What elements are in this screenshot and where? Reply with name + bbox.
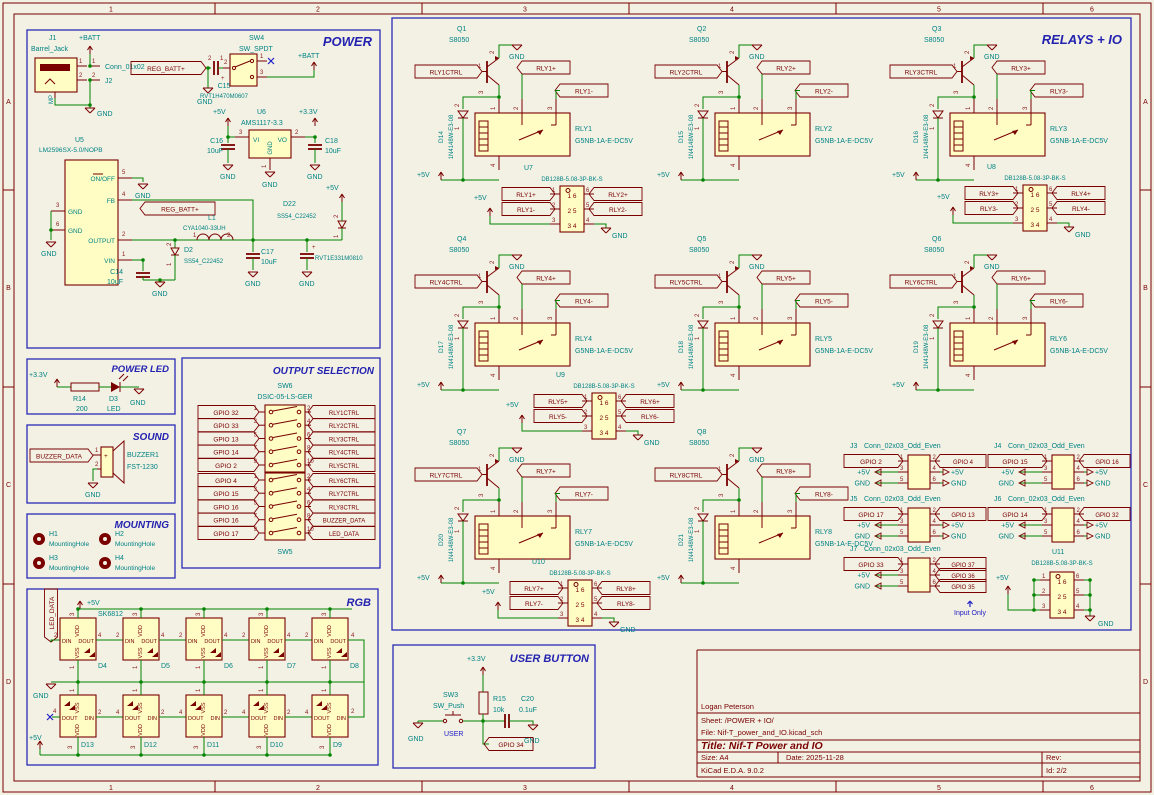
label: GND — [524, 738, 540, 745]
label: D14 — [438, 131, 445, 143]
gpio-label[interactable]: GPIO 33 — [198, 419, 259, 432]
net-label[interactable]: RLY2+ — [589, 188, 642, 201]
gnd-symbol — [302, 272, 312, 277]
label: GND — [197, 99, 213, 106]
ctrl-label[interactable]: RLY3CTRL — [308, 432, 375, 445]
label: GND — [998, 481, 1014, 488]
header-body[interactable] — [1052, 455, 1074, 489]
label: VSS — [264, 702, 270, 713]
label: 2 5 — [1057, 594, 1066, 601]
label: RLY8 — [815, 529, 832, 536]
label: 3 — [322, 612, 328, 616]
label: 1 — [262, 164, 268, 168]
label: 3 — [260, 70, 264, 76]
label: RLY2- — [815, 89, 833, 96]
label: GND — [220, 174, 236, 181]
power-arrow-icon — [481, 667, 486, 675]
junction — [1088, 578, 1092, 582]
label: 2 — [179, 633, 183, 639]
label: Q3 — [932, 26, 941, 33]
label: +5V — [417, 172, 430, 179]
label: RVT1E331M0810 — [315, 256, 363, 262]
gpio-label[interactable]: GPIO 14 — [198, 445, 259, 458]
label: VSS — [327, 702, 333, 713]
frame-row-label: A — [6, 99, 11, 106]
net-label[interactable]: RLY5- — [534, 410, 587, 423]
label: 4 — [224, 633, 228, 639]
relay-circuit-6[interactable]: Q6S8050RLY6CTRL1GND2321D191N4148W-E3-081… — [890, 236, 1108, 392]
label: 2 — [514, 106, 520, 110]
label: GND — [299, 281, 315, 288]
label: DB128B-5.08-3P-BK-S — [549, 571, 610, 577]
label: 2 — [224, 60, 228, 66]
net-label[interactable]: RLY3+ — [992, 61, 1045, 74]
label: 2 — [730, 453, 736, 457]
terminal-conn-U11[interactable]: U11DB128B-5.08-3P-BK-S1 62 53 4162534+5V… — [996, 549, 1114, 628]
gpio-label[interactable]: GPIO 16 — [1079, 455, 1130, 468]
label: VDD — [327, 625, 333, 637]
gpio-label[interactable]: GPIO 17 — [844, 508, 903, 521]
header-body[interactable] — [908, 558, 930, 592]
mounting-hole-icon[interactable] — [101, 559, 109, 567]
gpio-label[interactable]: GPIO 16 — [198, 513, 259, 526]
io-header-J6[interactable]: J6Conn_02x03_Odd_Even12GPIO 14GPIO 3234+… — [988, 496, 1130, 542]
ctrl-label[interactable]: RLY1CTRL — [308, 406, 375, 419]
flyback-diode — [458, 111, 468, 118]
flyback-diode — [698, 321, 708, 328]
relay-circuit-1[interactable]: Q1S8050RLY1CTRL1GND2321D141N4148W-E3-081… — [415, 26, 633, 182]
label: D16 — [913, 131, 920, 143]
gpio-label[interactable]: GPIO 32 — [198, 406, 259, 419]
transistor-emitter — [727, 58, 739, 67]
junction — [1032, 578, 1036, 582]
terminal-conn-U10[interactable]: U10DB128B-5.08-3P-BK-S1 62 53 4162534RLY… — [482, 559, 650, 634]
net-label-reg-batt[interactable]: REG_BATT+ — [140, 202, 215, 215]
ctrl-label[interactable]: RLY4CTRL — [308, 445, 375, 458]
power-arrow-icon — [55, 379, 60, 387]
power-arrow-icon — [488, 208, 493, 216]
ctrl-label[interactable]: RLY1CTRL — [415, 65, 482, 78]
label: GND — [620, 627, 636, 634]
label: +3.3V — [467, 656, 486, 663]
wire — [490, 216, 550, 224]
label: VDD — [201, 724, 207, 736]
wire — [953, 215, 1013, 223]
label: VSS — [138, 702, 144, 713]
label: GPIO 32 — [1095, 513, 1119, 519]
io-header-J4[interactable]: J4Conn_02x03_Odd_Even12GPIO 15GPIO 1634+… — [988, 443, 1130, 489]
ctrl-label[interactable]: RLY3CTRL — [890, 65, 957, 78]
label: G5NB-1A-E-DC5V — [575, 348, 633, 355]
ctrl-label[interactable]: RLY5CTRL — [308, 459, 375, 472]
label: H3 — [49, 555, 58, 562]
label: VDD — [264, 724, 270, 736]
gpio-label[interactable]: GPIO 4 — [198, 474, 259, 487]
label: 4 — [53, 709, 57, 715]
net-label[interactable]: RLY4- — [1052, 202, 1105, 215]
label: 1N4148W-E3-08 — [924, 114, 930, 159]
label: RLY7+ — [524, 586, 544, 593]
schematic-canvas[interactable]: 112233445566AABBCCDDLogan PetersonSheet:… — [0, 0, 1154, 795]
label: RLY5CTRL — [670, 280, 703, 287]
label: 3 — [900, 569, 904, 575]
label: C17 — [261, 249, 274, 256]
mounting-hole-icon[interactable] — [35, 535, 43, 543]
label: VIN — [104, 258, 115, 265]
label: 3 — [479, 493, 485, 497]
io-header-J5[interactable]: J5Conn_02x03_Odd_Even12GPIO 17GPIO 1334+… — [844, 496, 986, 542]
label: 1 — [259, 665, 265, 669]
ctrl-label[interactable]: BUZZER_DATA — [308, 513, 375, 526]
gpio-label[interactable]: GPIO 2 — [198, 459, 259, 472]
gpio-label[interactable]: GPIO 15 — [988, 455, 1047, 468]
ctrl-label[interactable]: RLY4CTRL — [415, 275, 482, 288]
relay-circuit-8[interactable]: Q8S8050RLY8CTRL1GND2321D211N4148W-E3-081… — [655, 429, 873, 585]
terminal-conn-U7[interactable]: U7DB128B-5.08-3P-BK-S1 62 53 4162534RLY1… — [474, 165, 642, 240]
line — [413, 723, 418, 728]
transistor-emitter — [962, 268, 974, 277]
label: RLY6CTRL — [905, 280, 938, 287]
net-label[interactable]: RLY7- — [510, 597, 563, 610]
label: DOUT — [267, 639, 283, 645]
net-label[interactable]: RLY4- — [555, 294, 608, 307]
label: 2 — [1042, 589, 1046, 595]
net-label[interactable]: RLY1+ — [517, 61, 570, 74]
net-label[interactable]: RLY5+ — [757, 271, 810, 284]
label: DSIC-05-LS-GER — [257, 394, 312, 401]
gpio-label[interactable]: GPIO 33 — [844, 558, 903, 571]
label: GND — [68, 228, 83, 235]
net-label[interactable]: RLY8+ — [757, 464, 810, 477]
label: DIN — [85, 716, 95, 722]
label: D10 — [270, 742, 283, 749]
wire — [626, 431, 638, 435]
label: 1 6 — [567, 193, 576, 200]
mounting-hole-icon[interactable] — [35, 559, 43, 567]
label: RLY3+ — [979, 191, 999, 198]
label: VSS — [75, 647, 81, 658]
label: 1N4148W-E3-08 — [924, 324, 930, 369]
net-label[interactable]: RLY3- — [1030, 84, 1083, 97]
label: +5V — [213, 109, 226, 116]
diode — [338, 221, 346, 228]
label: D22 — [283, 201, 296, 208]
transistor-collector — [962, 75, 974, 85]
label: 2 — [730, 260, 736, 264]
label: DIN — [125, 639, 135, 645]
label: GND — [130, 400, 146, 407]
line — [1069, 227, 1074, 232]
label: G5NB-1A-E-DC5V — [1050, 138, 1108, 145]
net-label-buzzer[interactable]: BUZZER_DATA — [30, 449, 93, 462]
label: L1 — [208, 215, 216, 222]
label: +3.3V — [29, 372, 48, 379]
power-arrow-icon — [520, 415, 525, 423]
net-label[interactable]: RLY1- — [502, 203, 555, 216]
wire — [228, 126, 235, 137]
spdt-switch[interactable] — [230, 54, 257, 86]
label: +5V — [857, 470, 870, 477]
label: 4 — [966, 163, 972, 167]
power-arrow-icon — [226, 118, 231, 126]
arrow-icon — [1087, 522, 1093, 528]
label: GND — [854, 584, 870, 591]
label: 1 — [478, 274, 482, 280]
line — [160, 282, 165, 287]
label: REG_BATT+ — [161, 207, 199, 214]
line — [265, 172, 270, 177]
net-label[interactable]: RLY8- — [597, 597, 650, 610]
label: 3 — [56, 203, 60, 209]
net-label[interactable]: RLY1- — [555, 84, 608, 97]
io-header-J7[interactable]: J7Conn_02x03_Odd_Even12GPIO 33GPIO 3734+… — [844, 546, 986, 593]
label: DB128B-5.08-3P-BK-S — [1031, 561, 1092, 567]
net-label[interactable]: RLY4+ — [517, 271, 570, 284]
line — [987, 45, 992, 50]
label: 2 — [989, 106, 995, 110]
net-label[interactable]: RLY5- — [795, 294, 848, 307]
sheet-id: Id: 2/2 — [1046, 766, 1067, 775]
label: RLY4CTRL — [329, 451, 360, 457]
frame-row-label: D — [6, 679, 11, 686]
barrel-jack[interactable] — [35, 58, 77, 92]
gpio-label[interactable]: GPIO 16 — [198, 500, 259, 513]
terminal-conn-U8[interactable]: U8DB128B-5.08-3P-BK-S1 62 53 4162534RLY3… — [937, 164, 1105, 239]
junction — [76, 753, 80, 757]
label: +5V — [482, 589, 495, 596]
ctrl-label[interactable]: LED_DATA — [308, 527, 375, 540]
ctrl-label[interactable]: RLY8CTRL — [655, 468, 722, 481]
label: RLY8+ — [616, 586, 636, 593]
gpio-label[interactable]: GPIO 2 — [844, 455, 903, 468]
gpio-label[interactable]: GPIO 17 — [198, 527, 259, 540]
relay-circuit-5[interactable]: Q5S8050RLY5CTRL1GND2321D181N4148W-E3-081… — [655, 236, 873, 392]
net-label[interactable]: RLY5+ — [534, 395, 587, 408]
label: RLY3- — [980, 206, 998, 213]
line — [93, 483, 98, 488]
label: +5V — [1095, 470, 1108, 477]
power-arrow-icon — [914, 382, 919, 390]
relay-circuit-7[interactable]: Q7S8050RLY7CTRL1GND2321D201N4148W-E3-081… — [415, 429, 633, 585]
label: J6 — [994, 496, 1002, 503]
section-power: POWERJ1+BATTBarrel_JackMP1122GNDConn_01x… — [27, 30, 380, 348]
label: GND — [854, 481, 870, 488]
label: 10uF — [325, 148, 341, 155]
junction — [328, 753, 332, 757]
frame-row-label: C — [6, 482, 11, 489]
net-label[interactable]: RLY2+ — [757, 61, 810, 74]
wire — [1057, 223, 1069, 227]
net-label[interactable]: RLY6- — [1030, 294, 1083, 307]
net-label[interactable]: RLY7+ — [517, 464, 570, 477]
net-label[interactable]: RLY6+ — [621, 395, 674, 408]
net-label[interactable]: RLY3+ — [965, 187, 1018, 200]
net-label[interactable]: RLY6- — [621, 410, 674, 423]
label: RLY1+ — [516, 192, 536, 199]
label: 4 — [179, 710, 183, 716]
gnd-symbol — [512, 448, 522, 453]
relay-circuit-4[interactable]: Q4S8050RLY4CTRL1GND2321D171N4148W-E3-081… — [415, 236, 633, 392]
gpio-label[interactable]: GPIO 4 — [935, 455, 986, 468]
power-arrow-icon — [439, 172, 444, 180]
net-label[interactable]: RLY2- — [589, 203, 642, 216]
io-header-J3[interactable]: J3Conn_02x03_Odd_Even12GPIO 2GPIO 434+5V… — [844, 443, 986, 489]
net-label[interactable]: RLY3- — [965, 202, 1018, 215]
terminal-conn-U9[interactable]: U9DB128B-5.08-3P-BK-S1 62 53 4162534RLY5… — [506, 372, 674, 447]
net-label[interactable]: RLY8- — [795, 487, 848, 500]
net-label[interactable]: RLY7- — [555, 487, 608, 500]
frame-column-label: 5 — [937, 7, 941, 14]
arrow-icon — [943, 469, 949, 475]
label: DIN — [314, 639, 324, 645]
flyback-diode — [933, 321, 943, 328]
label: S8050 — [449, 247, 469, 254]
label: 6 — [1077, 477, 1081, 483]
frame-column-label: 4 — [730, 785, 734, 792]
label: FST-1230 — [127, 464, 158, 471]
label: Q5 — [697, 236, 706, 243]
label: RLY4- — [575, 299, 593, 306]
label: 1 — [122, 252, 126, 258]
label: 3 — [196, 612, 202, 616]
label: Q7 — [457, 429, 466, 436]
label: 2 — [965, 260, 971, 264]
line — [517, 448, 522, 453]
label: RLY8CTRL — [670, 473, 703, 480]
relay-circuit-2[interactable]: Q2S8050RLY2CTRL1GND2321D151N4148W-E3-081… — [655, 26, 873, 182]
label: 1 — [196, 688, 202, 692]
line — [310, 165, 315, 170]
buzzer-body[interactable] — [101, 447, 113, 477]
label: H4 — [115, 555, 124, 562]
led-arrow — [123, 376, 128, 381]
label: J7 — [850, 546, 858, 553]
wire — [483, 721, 489, 744]
label: RLY6+ — [1011, 276, 1031, 283]
line — [757, 255, 762, 260]
label: RLY7- — [575, 492, 593, 499]
label: R15 — [493, 696, 506, 703]
relay-circuit-3[interactable]: Q3S8050RLY3CTRL1GND2321D161N4148W-E3-081… — [890, 26, 1108, 182]
label: D7 — [287, 663, 296, 670]
label: 1 — [322, 688, 328, 692]
section-user-button: USER BUTTON+3.3VR1510kSW3SW_PushGNDUSERG… — [393, 645, 595, 768]
resistor[interactable] — [479, 692, 488, 714]
label: Q8 — [697, 429, 706, 436]
label: 1 — [193, 233, 197, 239]
frame-column-label: 5 — [937, 785, 941, 792]
ctrl-label[interactable]: RLY8CTRL — [308, 500, 375, 513]
net-label[interactable]: RLY7+ — [510, 582, 563, 595]
label: RLY8CTRL — [329, 506, 360, 512]
label: GND — [644, 440, 660, 447]
header-body[interactable] — [908, 508, 930, 542]
label: 2 — [455, 103, 461, 107]
ctrl-label[interactable]: RLY2CTRL — [655, 65, 722, 78]
label: 2 — [930, 103, 936, 107]
label: 3 — [131, 745, 137, 749]
line — [1090, 616, 1095, 621]
net-label[interactable]: RLY8+ — [597, 582, 650, 595]
header-body[interactable] — [908, 455, 930, 489]
file-name: File: Nif-T_power_and_IO.kicad_sch — [701, 728, 822, 737]
gpio-label[interactable]: GPIO 15 — [198, 487, 259, 500]
net-label[interactable]: RLY2- — [795, 84, 848, 97]
header-body[interactable] — [1052, 508, 1074, 542]
label: 3 — [194, 745, 200, 749]
junction — [76, 607, 80, 611]
ctrl-label[interactable]: RLY5CTRL — [655, 275, 722, 288]
gnd-symbol — [46, 684, 56, 689]
label: S8050 — [924, 37, 944, 44]
label: 10uF — [107, 279, 123, 286]
label: GND — [408, 736, 424, 743]
label: 1 — [167, 262, 173, 266]
frame-row-label: B — [6, 285, 11, 292]
label: 2 — [754, 509, 760, 513]
label: Conn_02x03_Odd_Even — [864, 496, 941, 503]
line — [270, 172, 275, 177]
section-user-button-title: USER BUTTON — [510, 653, 590, 665]
net-label[interactable]: RLY6+ — [992, 271, 1045, 284]
line — [1085, 616, 1090, 621]
mounting-hole-icon[interactable] — [101, 535, 109, 543]
resistor[interactable] — [71, 383, 99, 391]
net-label[interactable]: RLY1+ — [502, 188, 555, 201]
gpio-label[interactable]: GPIO 14 — [988, 508, 1047, 521]
gnd-symbol — [203, 88, 213, 93]
label: S8050 — [924, 247, 944, 254]
line — [208, 88, 213, 93]
gpio-label[interactable]: GPIO 32 — [1079, 508, 1130, 521]
power-arrow-icon — [1006, 586, 1011, 594]
label: 1 — [491, 509, 497, 513]
wire — [509, 721, 533, 725]
label: DIN — [274, 716, 284, 722]
label: 4 — [116, 710, 120, 716]
label: D13 — [81, 742, 94, 749]
ctrl-label[interactable]: RLY2CTRL — [308, 419, 375, 432]
line — [638, 435, 643, 440]
label: +5V — [29, 735, 42, 742]
power-arrow-icon — [439, 382, 444, 390]
label: 4 — [491, 163, 497, 167]
label: LED_DATA — [49, 596, 56, 629]
ctrl-label[interactable]: RLY7CTRL — [415, 468, 482, 481]
label: VDD — [138, 724, 144, 736]
label: 1 — [455, 336, 461, 340]
label: SW3 — [443, 692, 458, 699]
label: RLY1- — [517, 207, 535, 214]
gpio-label[interactable]: GPIO 13 — [935, 508, 986, 521]
power-arrow-icon — [38, 741, 43, 749]
label: OUTPUT — [88, 238, 115, 245]
ctrl-label[interactable]: RLY7CTRL — [308, 487, 375, 500]
label: 3 — [1023, 316, 1029, 320]
junction — [139, 607, 143, 611]
label: 3 — [788, 316, 794, 320]
gpio-label[interactable]: GPIO 13 — [198, 432, 259, 445]
label: RLY7+ — [536, 469, 556, 476]
label: 2 — [695, 506, 701, 510]
label: D8 — [350, 663, 359, 670]
net-label[interactable]: RLY4+ — [1052, 187, 1105, 200]
ctrl-label[interactable]: RLY6CTRL — [308, 474, 375, 487]
transistor-emitter — [487, 268, 499, 277]
ctrl-label[interactable]: RLY6CTRL — [890, 275, 957, 288]
label: G5NB-1A-E-DC5V — [1050, 348, 1108, 355]
line — [1064, 227, 1069, 232]
